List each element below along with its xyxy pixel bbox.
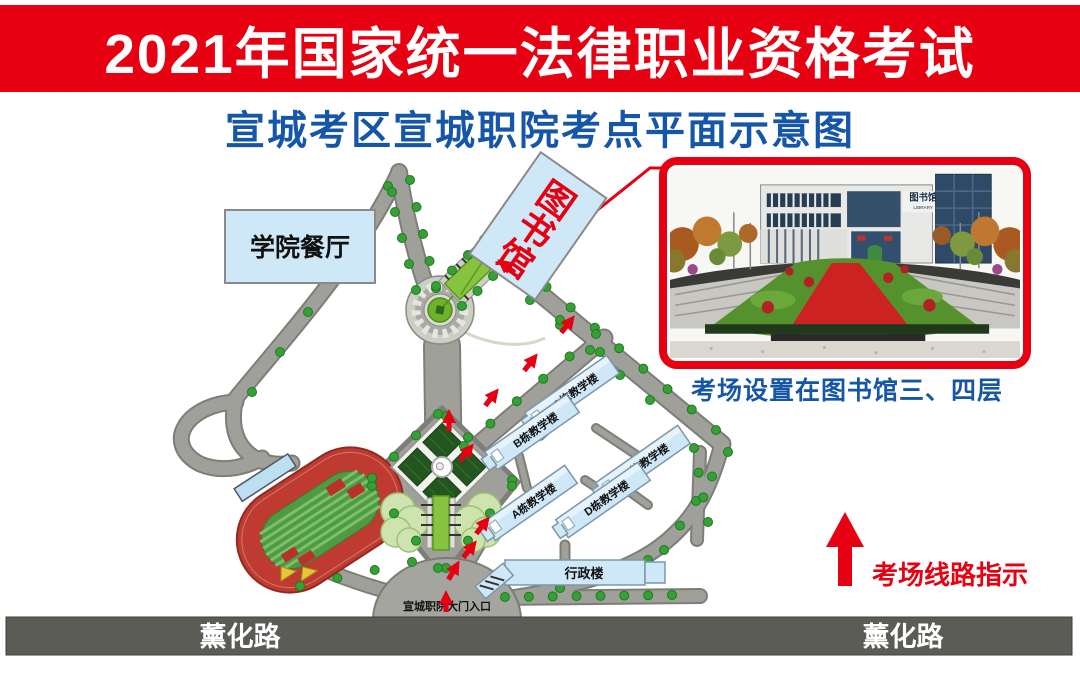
- road-label-left: 薰化路: [200, 621, 282, 652]
- library-photo: 图书馆 LIBRARY: [670, 168, 1020, 358]
- exam-site-map-poster: 宣城职院大门入口: [0, 0, 1080, 695]
- photo-building-sign: 图书馆: [909, 192, 937, 203]
- inset-caption: 考场设置在图书馆三、四层: [662, 371, 1032, 407]
- route-legend: 考场线路指示: [826, 512, 1028, 590]
- bottom-road: 薰化路 薰化路: [6, 617, 1072, 655]
- road-label-right: 薰化路: [863, 621, 945, 652]
- cafeteria-label: 学院餐厅: [250, 233, 350, 262]
- title-banner: 2021年国家统一法律职业资格考试: [0, 5, 1080, 92]
- cafeteria: 学院餐厅: [225, 210, 375, 283]
- poster-title: 2021年国家统一法律职业资格考试: [104, 9, 975, 89]
- route-legend-arrow-icon: [826, 512, 864, 586]
- route-legend-label: 考场线路指示: [872, 560, 1028, 590]
- photo-building-sign-en: LIBRARY: [913, 205, 934, 210]
- admin-label: 行政楼: [563, 566, 603, 581]
- poster-subtitle: 宣城考区宣城职院考点平面示意图: [0, 98, 1080, 156]
- library-photo-inset: 图书馆 LIBRARY: [659, 157, 1031, 369]
